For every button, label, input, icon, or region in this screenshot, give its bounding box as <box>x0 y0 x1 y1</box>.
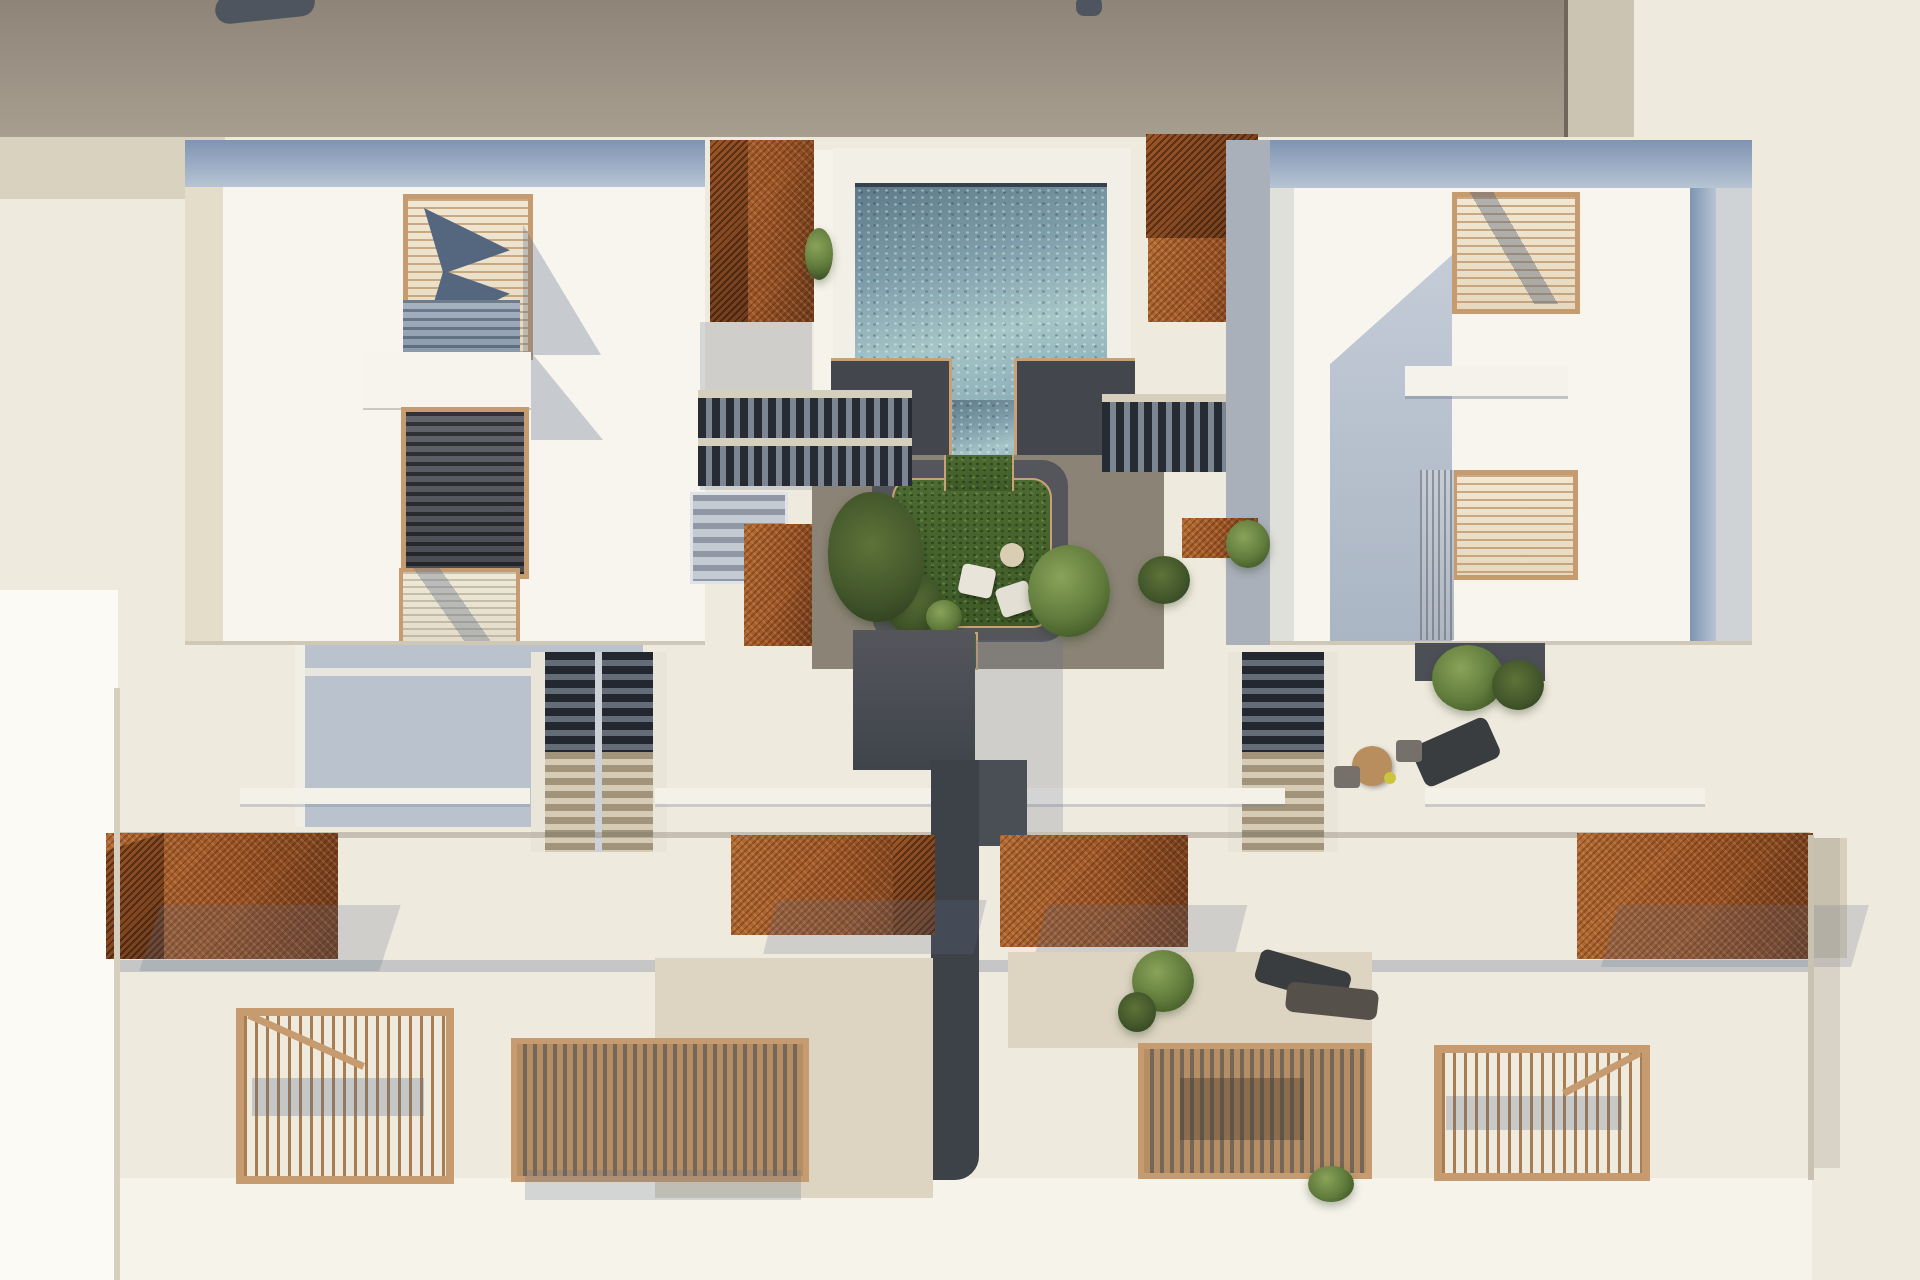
parapet-strip-a <box>240 788 530 804</box>
parapet-strip-d <box>1425 788 1705 804</box>
lawn-side-table <box>1000 543 1024 567</box>
south-stair-west-stringer-r <box>653 652 667 852</box>
walkway-lower <box>931 760 979 1180</box>
switchback-corten-screen <box>744 524 816 646</box>
bistro-accent <box>1384 772 1396 784</box>
terrace-plant-south <box>1308 1166 1354 1202</box>
pergola-west-shadow <box>525 1170 801 1200</box>
south-stair-east-stringer-l <box>1228 652 1242 852</box>
railing-east-shadow-band <box>1446 1096 1622 1130</box>
terrace-plant-east-b <box>1118 992 1156 1032</box>
south-stair-east-upper <box>1242 652 1324 752</box>
rooftop-object-small-icon <box>1076 0 1102 16</box>
west-block-parapet <box>185 140 705 187</box>
east-block-parapet <box>1270 140 1752 188</box>
adjacent-roof-pillar <box>1568 0 1634 137</box>
west-sidewalk <box>0 590 118 1280</box>
pergola-east-interior-shadow <box>1180 1078 1304 1140</box>
east-block-west-shadow <box>1270 188 1294 643</box>
west-patio-dark-slats <box>401 407 529 579</box>
east-ledge <box>1405 366 1568 396</box>
court-tree-east <box>1028 545 1110 637</box>
south-stair-west-rail <box>595 652 602 852</box>
complex-west-edge <box>114 688 120 1280</box>
walkway-gap-shadow <box>977 760 1027 846</box>
parapet-strip-b <box>655 788 935 804</box>
west-slatted-opening <box>403 300 520 352</box>
west-block-west-edge <box>185 187 223 643</box>
west-patio-louvre-shadow <box>399 568 512 642</box>
bistro-chair-b <box>1396 740 1422 762</box>
aerial-render-canvas <box>0 0 1920 1280</box>
east-stair <box>1102 402 1232 472</box>
east-terrace-tree-b <box>1492 660 1544 710</box>
canopy-center-west-shadow <box>763 900 986 954</box>
east-skylight-shadow-arc <box>1452 192 1570 304</box>
west-balcony-notch <box>363 352 531 408</box>
complex-east-edge-shadow <box>1814 838 1840 1168</box>
lawn-neck <box>944 455 1014 491</box>
east-block-east-parapet <box>1690 188 1716 643</box>
lawn-plant-small <box>926 600 962 634</box>
west-twin-stair-stringer <box>698 390 912 398</box>
court-plant-east-a <box>1138 556 1190 604</box>
adjacent-roof-edge <box>1564 0 1568 137</box>
south-row-floor <box>118 1178 1812 1280</box>
west-twin-stair-mid <box>698 438 912 446</box>
bistro-chair-a <box>1334 766 1360 788</box>
south-stair-east-stringer-r <box>1324 652 1338 852</box>
pool-deck-plant <box>805 228 833 280</box>
east-skylight-louvre-south <box>1452 470 1578 580</box>
west-twin-stair-upper <box>698 398 912 438</box>
south-stair-west-stringer-l <box>531 652 545 852</box>
walkway-upper <box>853 630 975 770</box>
east-rib-panel <box>1420 470 1454 640</box>
pool-corten-screen-west-face <box>710 140 748 322</box>
west-twin-stair-lower <box>698 446 912 486</box>
east-passage-wall <box>1226 140 1272 645</box>
court-plant-east-b <box>1226 520 1270 568</box>
east-stair-stringer <box>1102 394 1232 402</box>
pergola-west <box>511 1038 809 1182</box>
east-block-east-wall <box>1716 188 1752 643</box>
